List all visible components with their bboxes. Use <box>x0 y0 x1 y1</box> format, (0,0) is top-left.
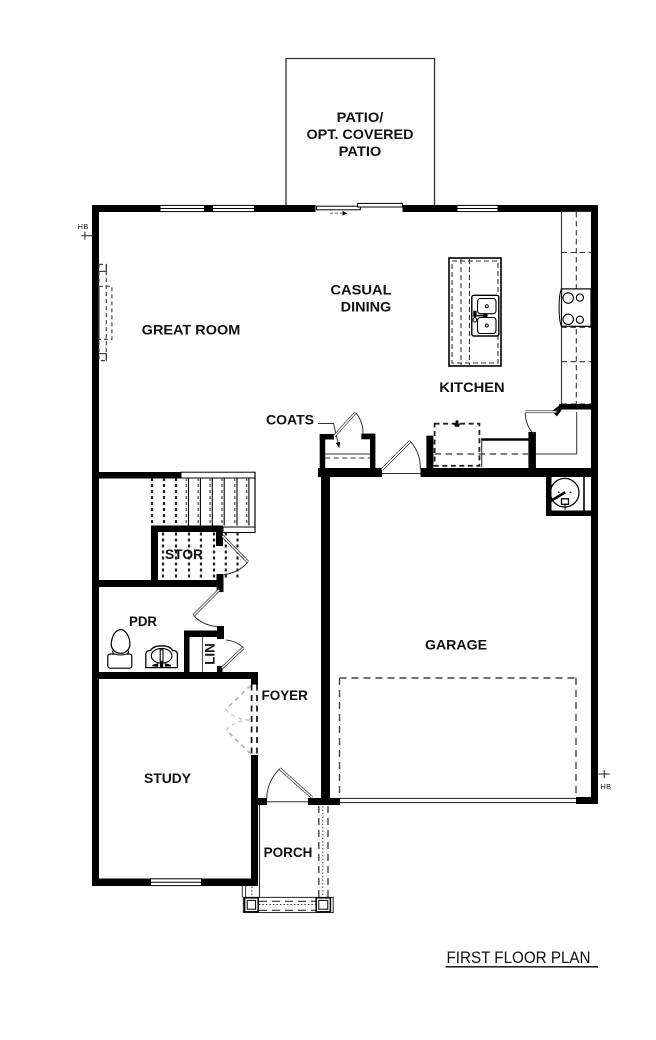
svg-text:PATIO/: PATIO/ <box>337 109 384 125</box>
svg-text:STUDY: STUDY <box>144 770 192 786</box>
svg-text:DINING: DINING <box>341 298 392 314</box>
svg-text:HB: HB <box>601 782 612 791</box>
svg-text:GARAGE: GARAGE <box>425 637 487 653</box>
svg-text:PDR: PDR <box>129 613 157 629</box>
svg-text:PORCH: PORCH <box>264 844 313 860</box>
svg-text:STOR: STOR <box>165 546 203 562</box>
svg-text:HB: HB <box>78 222 89 231</box>
svg-text:PATIO: PATIO <box>339 143 382 159</box>
svg-text:GREAT ROOM: GREAT ROOM <box>142 322 241 338</box>
svg-text:CASUAL: CASUAL <box>330 282 392 298</box>
svg-text:OPT. COVERED: OPT. COVERED <box>307 126 414 142</box>
svg-text:FOYER: FOYER <box>262 687 308 703</box>
svg-text:FIRST FLOOR PLAN: FIRST FLOOR PLAN <box>447 948 591 967</box>
svg-text:LIN: LIN <box>202 643 218 665</box>
svg-text:KITCHEN: KITCHEN <box>439 379 504 395</box>
svg-text:COATS: COATS <box>266 412 314 428</box>
